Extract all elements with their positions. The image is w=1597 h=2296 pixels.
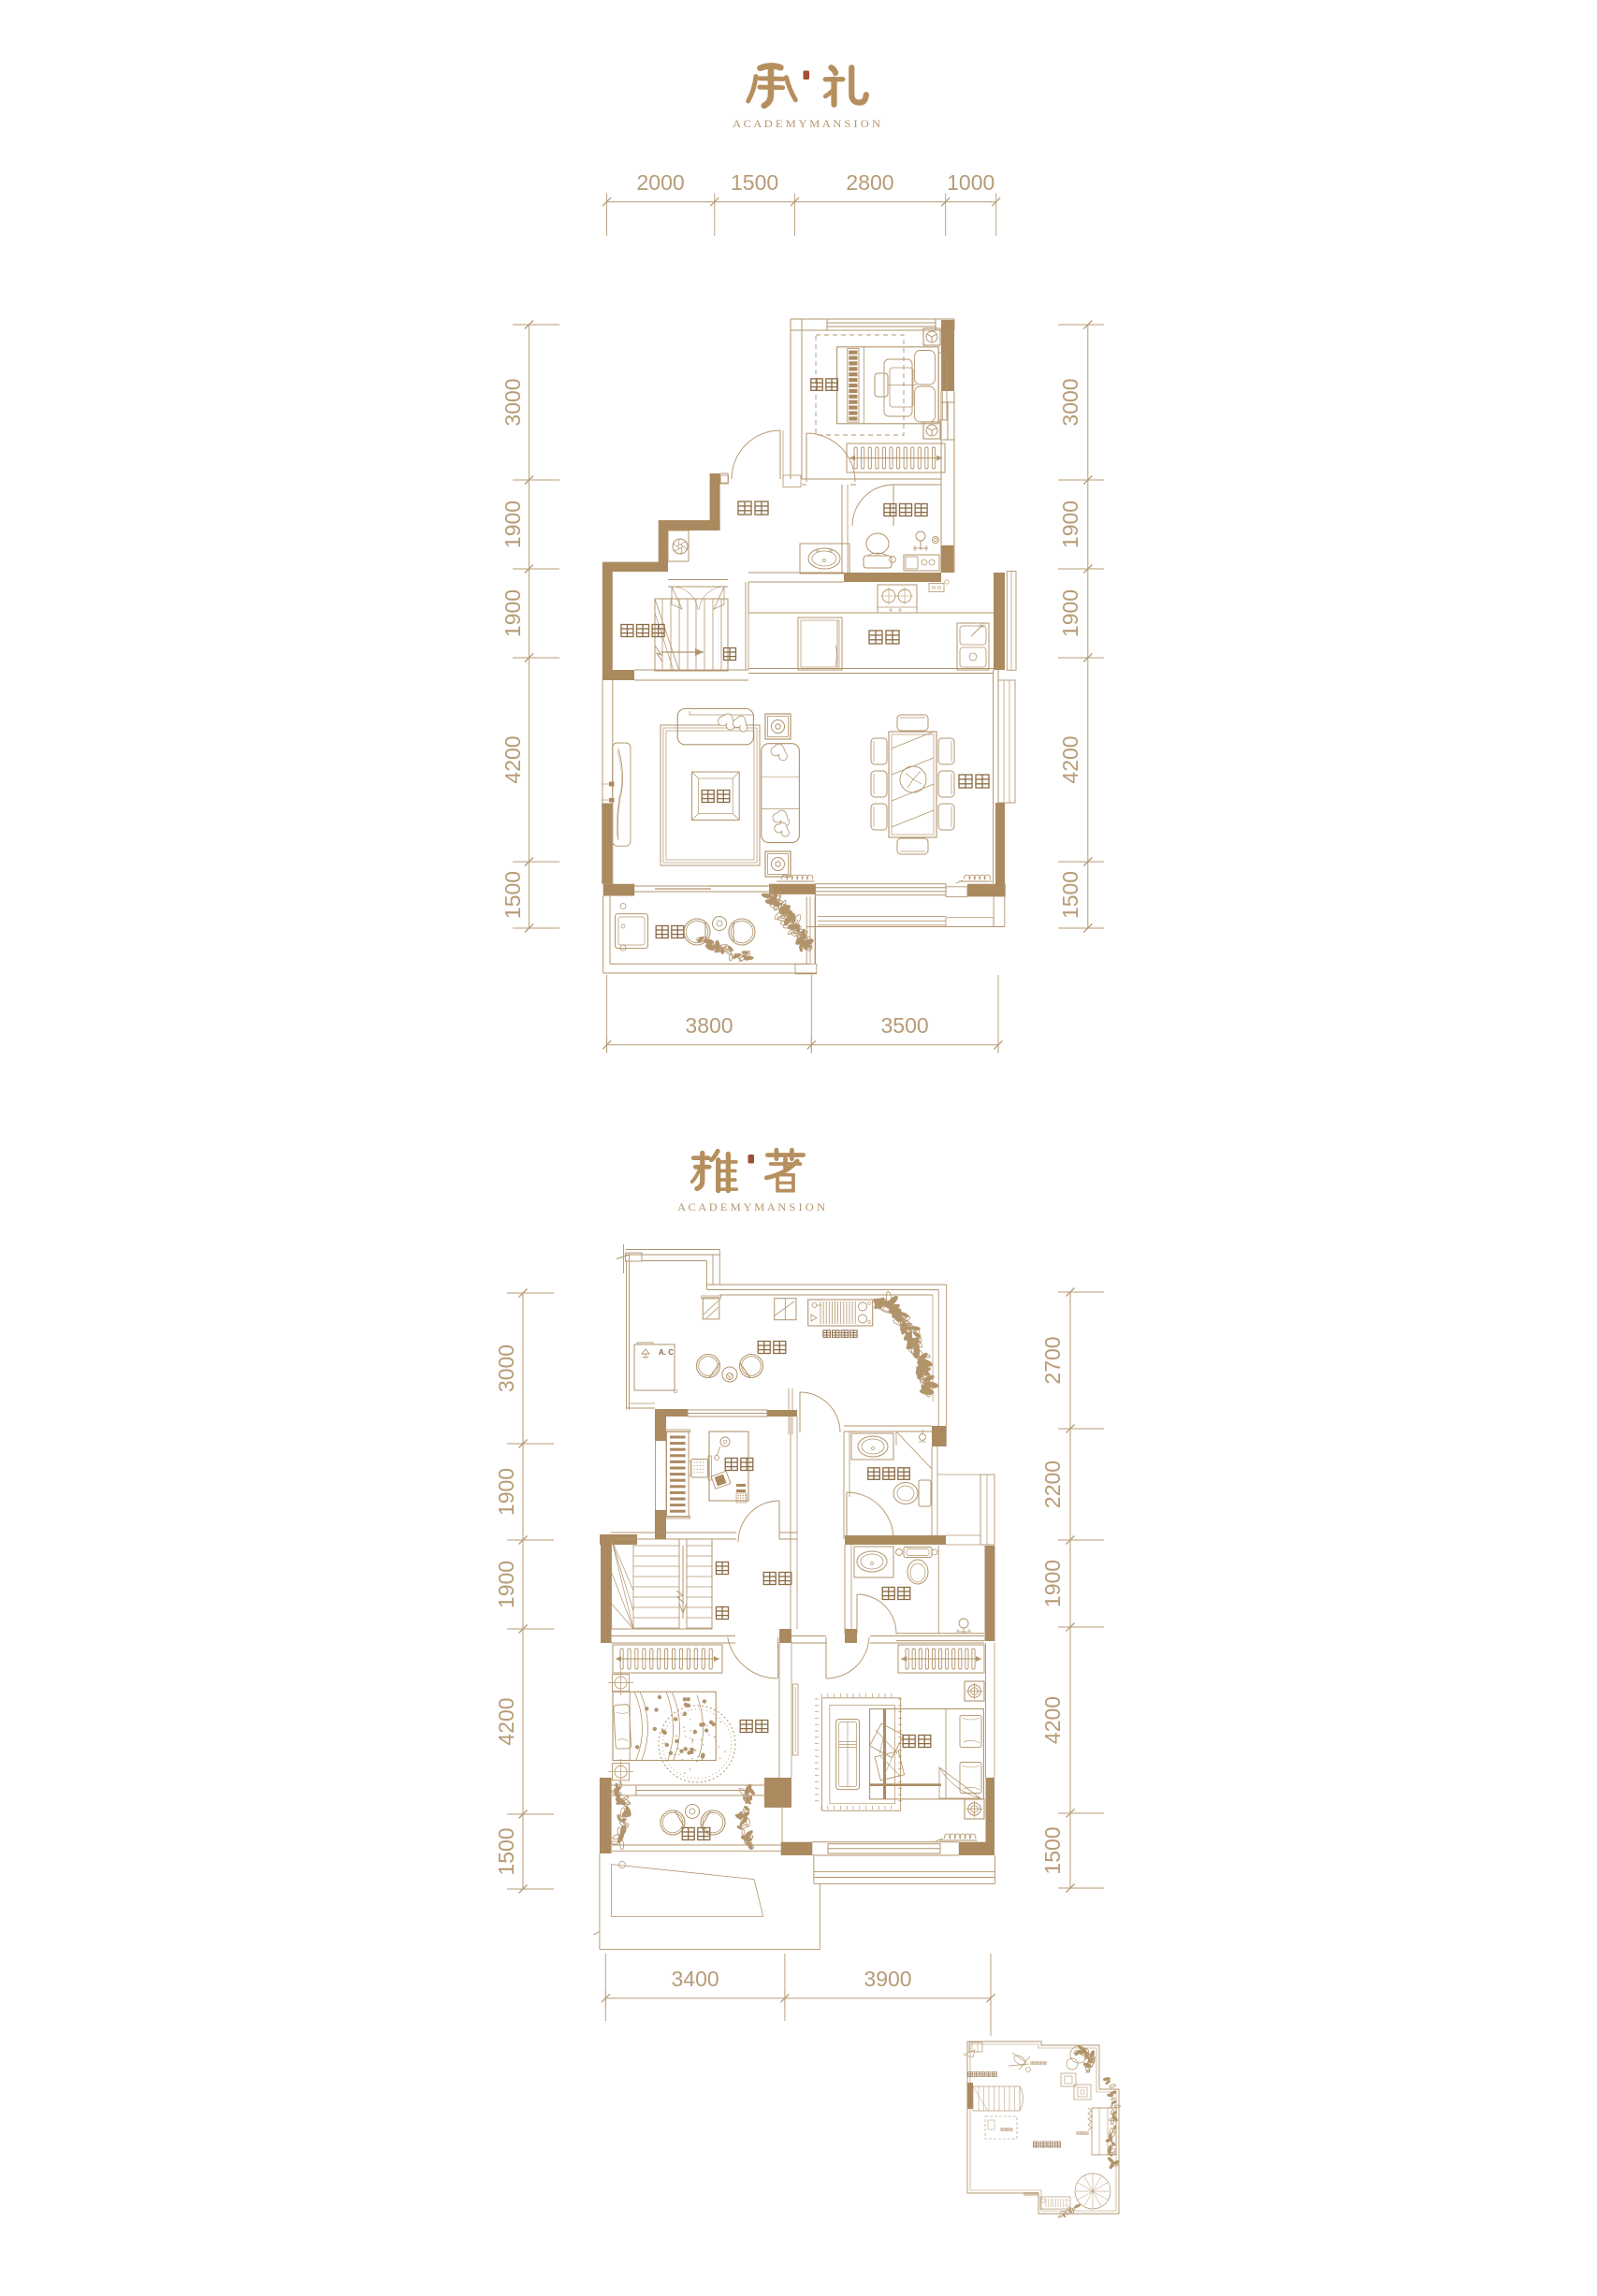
svg-text:1900: 1900 bbox=[501, 501, 525, 548]
svg-text:4200: 4200 bbox=[1058, 735, 1082, 783]
svg-text:2200: 2200 bbox=[1040, 1460, 1065, 1508]
svg-text:3400: 3400 bbox=[672, 1967, 719, 1991]
svg-text:3000: 3000 bbox=[1058, 378, 1082, 426]
svg-text:3000: 3000 bbox=[501, 378, 525, 426]
svg-text:3500: 3500 bbox=[881, 1013, 929, 1038]
svg-text:1900: 1900 bbox=[494, 1468, 518, 1516]
svg-text:1500: 1500 bbox=[1040, 1826, 1065, 1874]
svg-text:1900: 1900 bbox=[1058, 501, 1082, 548]
svg-text:1500: 1500 bbox=[501, 871, 525, 919]
svg-text:4200: 4200 bbox=[501, 735, 525, 783]
svg-text:1500: 1500 bbox=[1058, 871, 1082, 919]
svg-text:A C A D E M Y M A N S I O N: A C A D E M Y M A N S I O N bbox=[677, 1200, 825, 1213]
svg-text:1500: 1500 bbox=[731, 170, 778, 195]
svg-text:2700: 2700 bbox=[1040, 1336, 1065, 1384]
svg-text:A. C: A. C bbox=[659, 1348, 674, 1357]
svg-text:2000: 2000 bbox=[637, 170, 685, 195]
svg-text:1900: 1900 bbox=[494, 1561, 518, 1608]
svg-text:3800: 3800 bbox=[685, 1013, 733, 1038]
svg-text:1000: 1000 bbox=[947, 170, 994, 195]
svg-text:3000: 3000 bbox=[494, 1344, 518, 1392]
svg-text:4200: 4200 bbox=[494, 1697, 518, 1745]
svg-text:3900: 3900 bbox=[864, 1967, 911, 1991]
svg-text:2800: 2800 bbox=[846, 170, 893, 195]
svg-text:1900: 1900 bbox=[1058, 589, 1082, 637]
svg-text:1500: 1500 bbox=[494, 1827, 518, 1875]
svg-text:1900: 1900 bbox=[1040, 1560, 1065, 1607]
svg-text:A C A D E M Y M A N S I O N: A C A D E M Y M A N S I O N bbox=[733, 117, 880, 130]
svg-text:4200: 4200 bbox=[1040, 1696, 1065, 1744]
svg-text:1900: 1900 bbox=[501, 589, 525, 637]
